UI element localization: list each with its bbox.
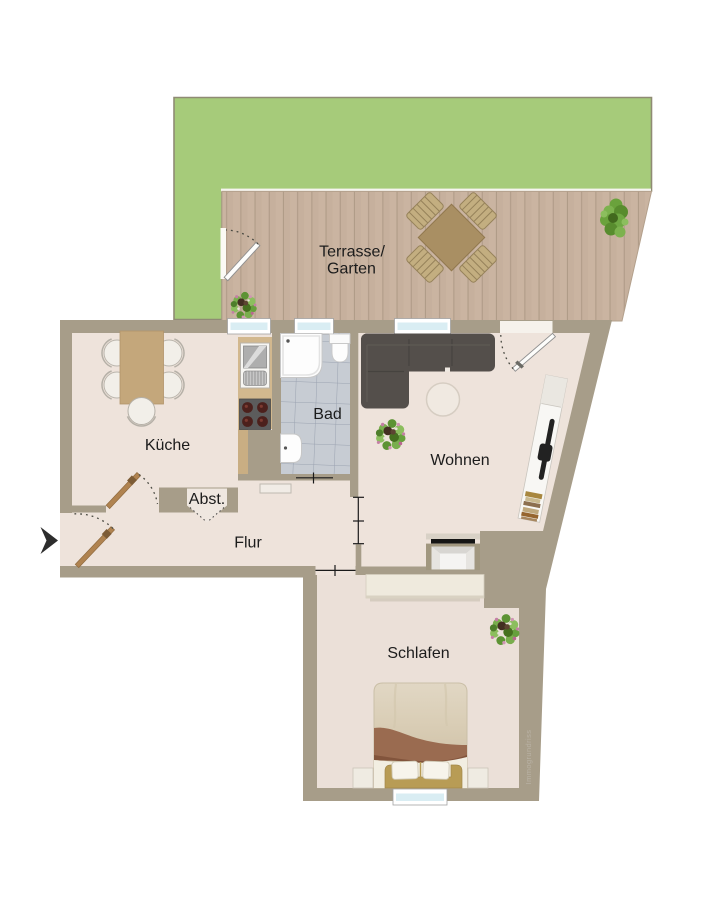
svg-text:Flur: Flur — [234, 535, 262, 552]
svg-text:Bad: Bad — [313, 406, 341, 423]
svg-text:Abst.: Abst. — [189, 491, 225, 508]
svg-text:Wohnen: Wohnen — [430, 452, 489, 469]
svg-text:Küche: Küche — [145, 437, 190, 454]
svg-text:Terrasse/: Terrasse/ — [319, 244, 385, 261]
svg-text:Garten: Garten — [327, 261, 376, 278]
svg-text:Immogrundriss: Immogrundriss — [524, 730, 533, 785]
svg-text:Schlafen: Schlafen — [387, 645, 449, 662]
